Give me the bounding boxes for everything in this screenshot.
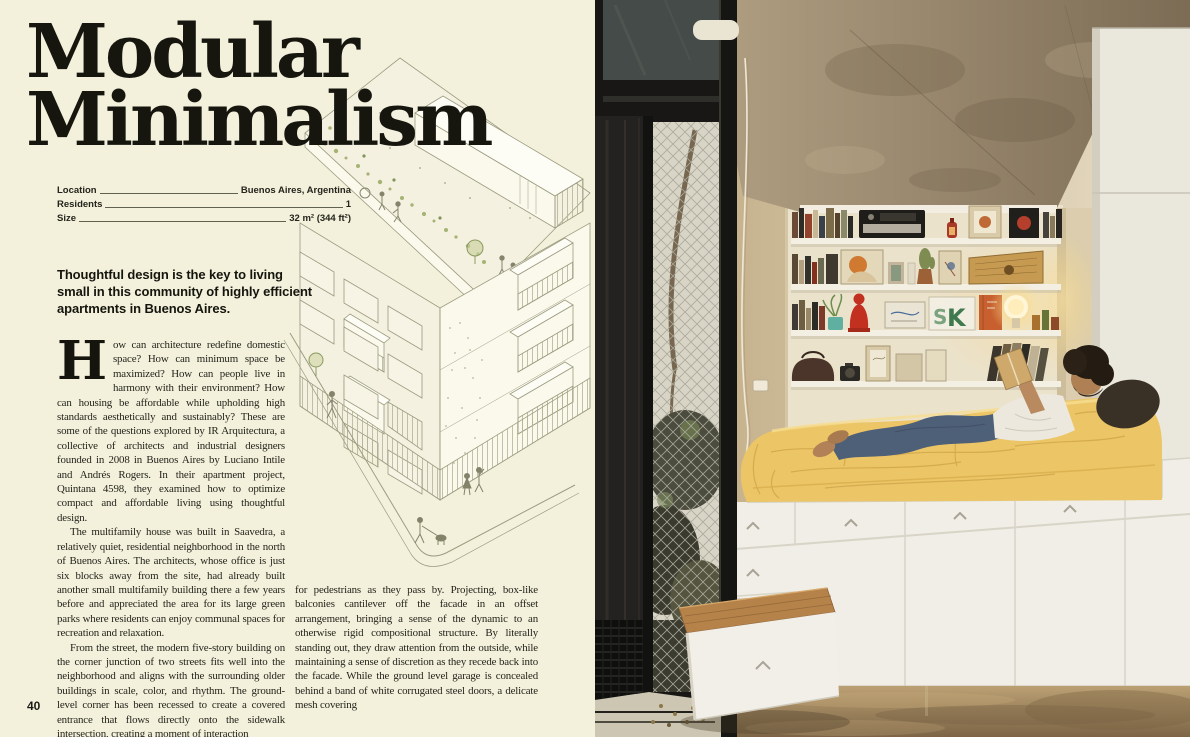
letter-prints: S K <box>929 297 975 332</box>
meta-label: Residents <box>57 199 102 210</box>
article-page: ModularMinimalism Location Buenos Aires,… <box>0 0 595 737</box>
paragraph: From the street, the modern five-story b… <box>57 641 285 737</box>
svg-text:S: S <box>933 305 947 329</box>
framed-art-small <box>939 251 961 284</box>
meta-row-residents: Residents 1 <box>57 196 351 210</box>
dropcap: H <box>57 338 113 382</box>
article-title: ModularMinimalism <box>26 18 490 154</box>
page-number: 40 <box>27 699 40 713</box>
roller-blind <box>693 20 739 40</box>
framed-sketch <box>866 346 890 381</box>
body-column-2: for pedestrians as they pass by. Project… <box>295 583 538 713</box>
paragraph: The multifamily house was built in Saave… <box>57 525 285 640</box>
dark-curtain <box>595 116 649 646</box>
magazine-spread: ModularMinimalism Location Buenos Aires,… <box>0 0 1190 737</box>
meta-value: Buenos Aires, Argentina <box>241 185 351 196</box>
meta-row-location: Location Buenos Aires, Argentina <box>57 182 351 196</box>
leader-line <box>100 193 238 194</box>
meta-label: Size <box>57 213 76 224</box>
svg-text:K: K <box>947 304 967 332</box>
framed-art-orange-circle <box>841 250 883 284</box>
meta-row-size: Size 32 m² (344 ft²) <box>57 210 351 224</box>
photo-bedroom: S K <box>595 0 1190 737</box>
leader-line <box>79 221 286 222</box>
paragraph: How can architecture redefine domestic s… <box>57 338 285 525</box>
postcard <box>885 302 925 328</box>
wall-socket <box>753 380 768 391</box>
framed-picture <box>969 206 1001 238</box>
meta-value: 32 m² (344 ft²) <box>289 213 351 224</box>
paragraph: for pedestrians as they pass by. Project… <box>295 583 538 713</box>
record-album <box>1009 208 1039 238</box>
meta-label: Location <box>57 185 97 196</box>
project-meta: Location Buenos Aires, Argentina Residen… <box>57 182 351 224</box>
standfirst: Thoughtful design is the key to living s… <box>57 266 313 318</box>
upper-glass-pane <box>603 0 719 80</box>
body-column-1: How can architecture redefine domestic s… <box>57 338 285 737</box>
radio <box>859 210 925 238</box>
leader-line <box>105 207 342 208</box>
meta-value: 1 <box>346 199 351 210</box>
